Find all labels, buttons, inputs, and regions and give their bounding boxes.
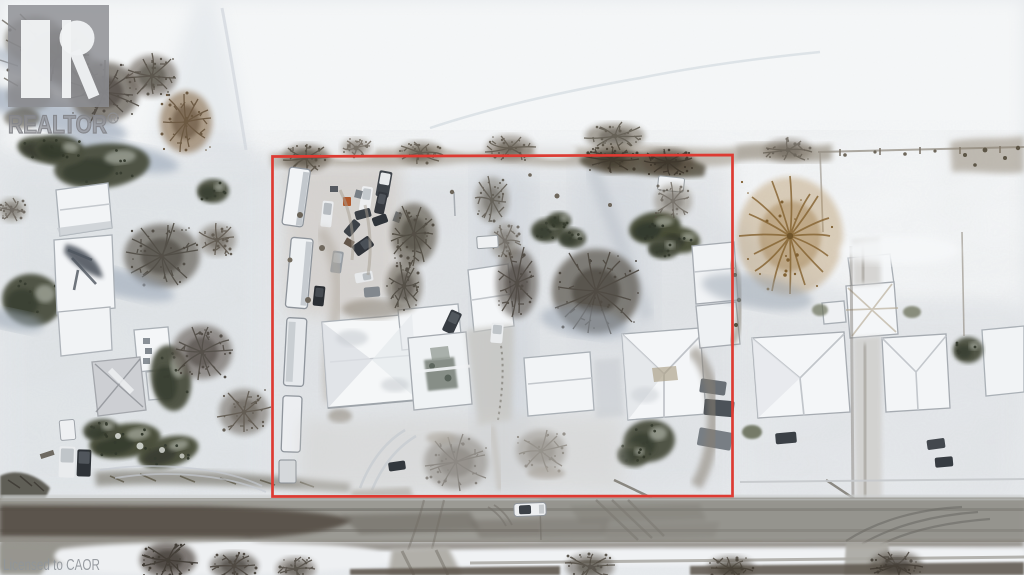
svg-text:Licensed to CAOR: Licensed to CAOR	[3, 557, 100, 574]
svg-text:R: R	[110, 114, 117, 124]
svg-text:REALTOR: REALTOR	[8, 111, 107, 139]
